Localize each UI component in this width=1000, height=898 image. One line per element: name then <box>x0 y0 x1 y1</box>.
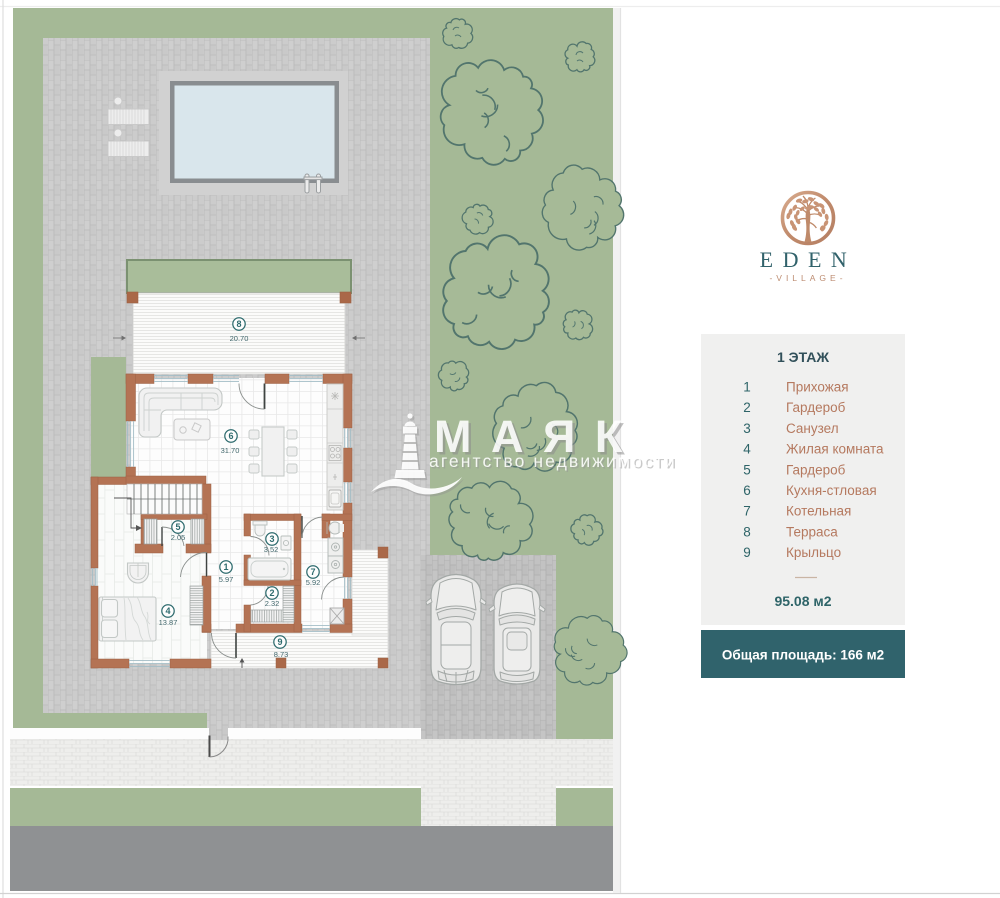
svg-text:8.73: 8.73 <box>274 650 289 659</box>
svg-text:9: 9 <box>743 545 751 560</box>
svg-text:1: 1 <box>743 380 751 395</box>
svg-text:3.52: 3.52 <box>264 545 279 554</box>
svg-text:9: 9 <box>277 637 282 647</box>
svg-text:8: 8 <box>743 524 751 539</box>
svg-text:Терраса: Терраса <box>786 524 838 539</box>
svg-text:20.70: 20.70 <box>230 334 249 343</box>
svg-text:5: 5 <box>175 522 180 532</box>
svg-text:2: 2 <box>269 588 274 598</box>
svg-text:5: 5 <box>743 462 751 477</box>
svg-text:7: 7 <box>310 567 315 577</box>
svg-text:3: 3 <box>743 421 751 436</box>
svg-text:5.97: 5.97 <box>219 575 234 584</box>
svg-text:Котельная: Котельная <box>786 504 851 519</box>
svg-text:агентство недвижимости: агентство недвижимости <box>429 451 677 471</box>
svg-text:Жилая комната: Жилая комната <box>786 442 884 457</box>
svg-text:Санузел: Санузел <box>786 421 839 436</box>
svg-text:5.92: 5.92 <box>306 578 321 587</box>
svg-text:4: 4 <box>165 606 170 616</box>
svg-text:Гардероб: Гардероб <box>786 462 846 477</box>
svg-text:Крыльцо: Крыльцо <box>786 545 841 560</box>
svg-text:6: 6 <box>743 483 751 498</box>
svg-text:31.70: 31.70 <box>221 446 240 455</box>
svg-text:2.32: 2.32 <box>265 599 280 608</box>
svg-text:7: 7 <box>743 504 751 519</box>
svg-text:1 ЭТАЖ: 1 ЭТАЖ <box>777 349 829 365</box>
svg-text:-VILLAGE-: -VILLAGE- <box>769 273 846 283</box>
svg-text:Кухня-стловая: Кухня-стловая <box>786 483 877 498</box>
svg-text:Гардероб: Гардероб <box>786 400 846 415</box>
svg-text:95.08 м2: 95.08 м2 <box>774 593 831 609</box>
svg-text:1: 1 <box>223 562 228 572</box>
svg-text:8: 8 <box>236 319 241 329</box>
svg-text:6: 6 <box>228 431 233 441</box>
svg-text:4: 4 <box>743 442 751 457</box>
svg-text:EDEN: EDEN <box>760 247 857 272</box>
svg-text:13.87: 13.87 <box>159 618 178 627</box>
svg-text:Общая площадь: 166 м2: Общая площадь: 166 м2 <box>722 648 884 663</box>
svg-text:2: 2 <box>743 400 751 415</box>
svg-text:2.05: 2.05 <box>171 533 186 542</box>
svg-text:3: 3 <box>269 534 274 544</box>
svg-text:Прихожая: Прихожая <box>786 380 849 395</box>
